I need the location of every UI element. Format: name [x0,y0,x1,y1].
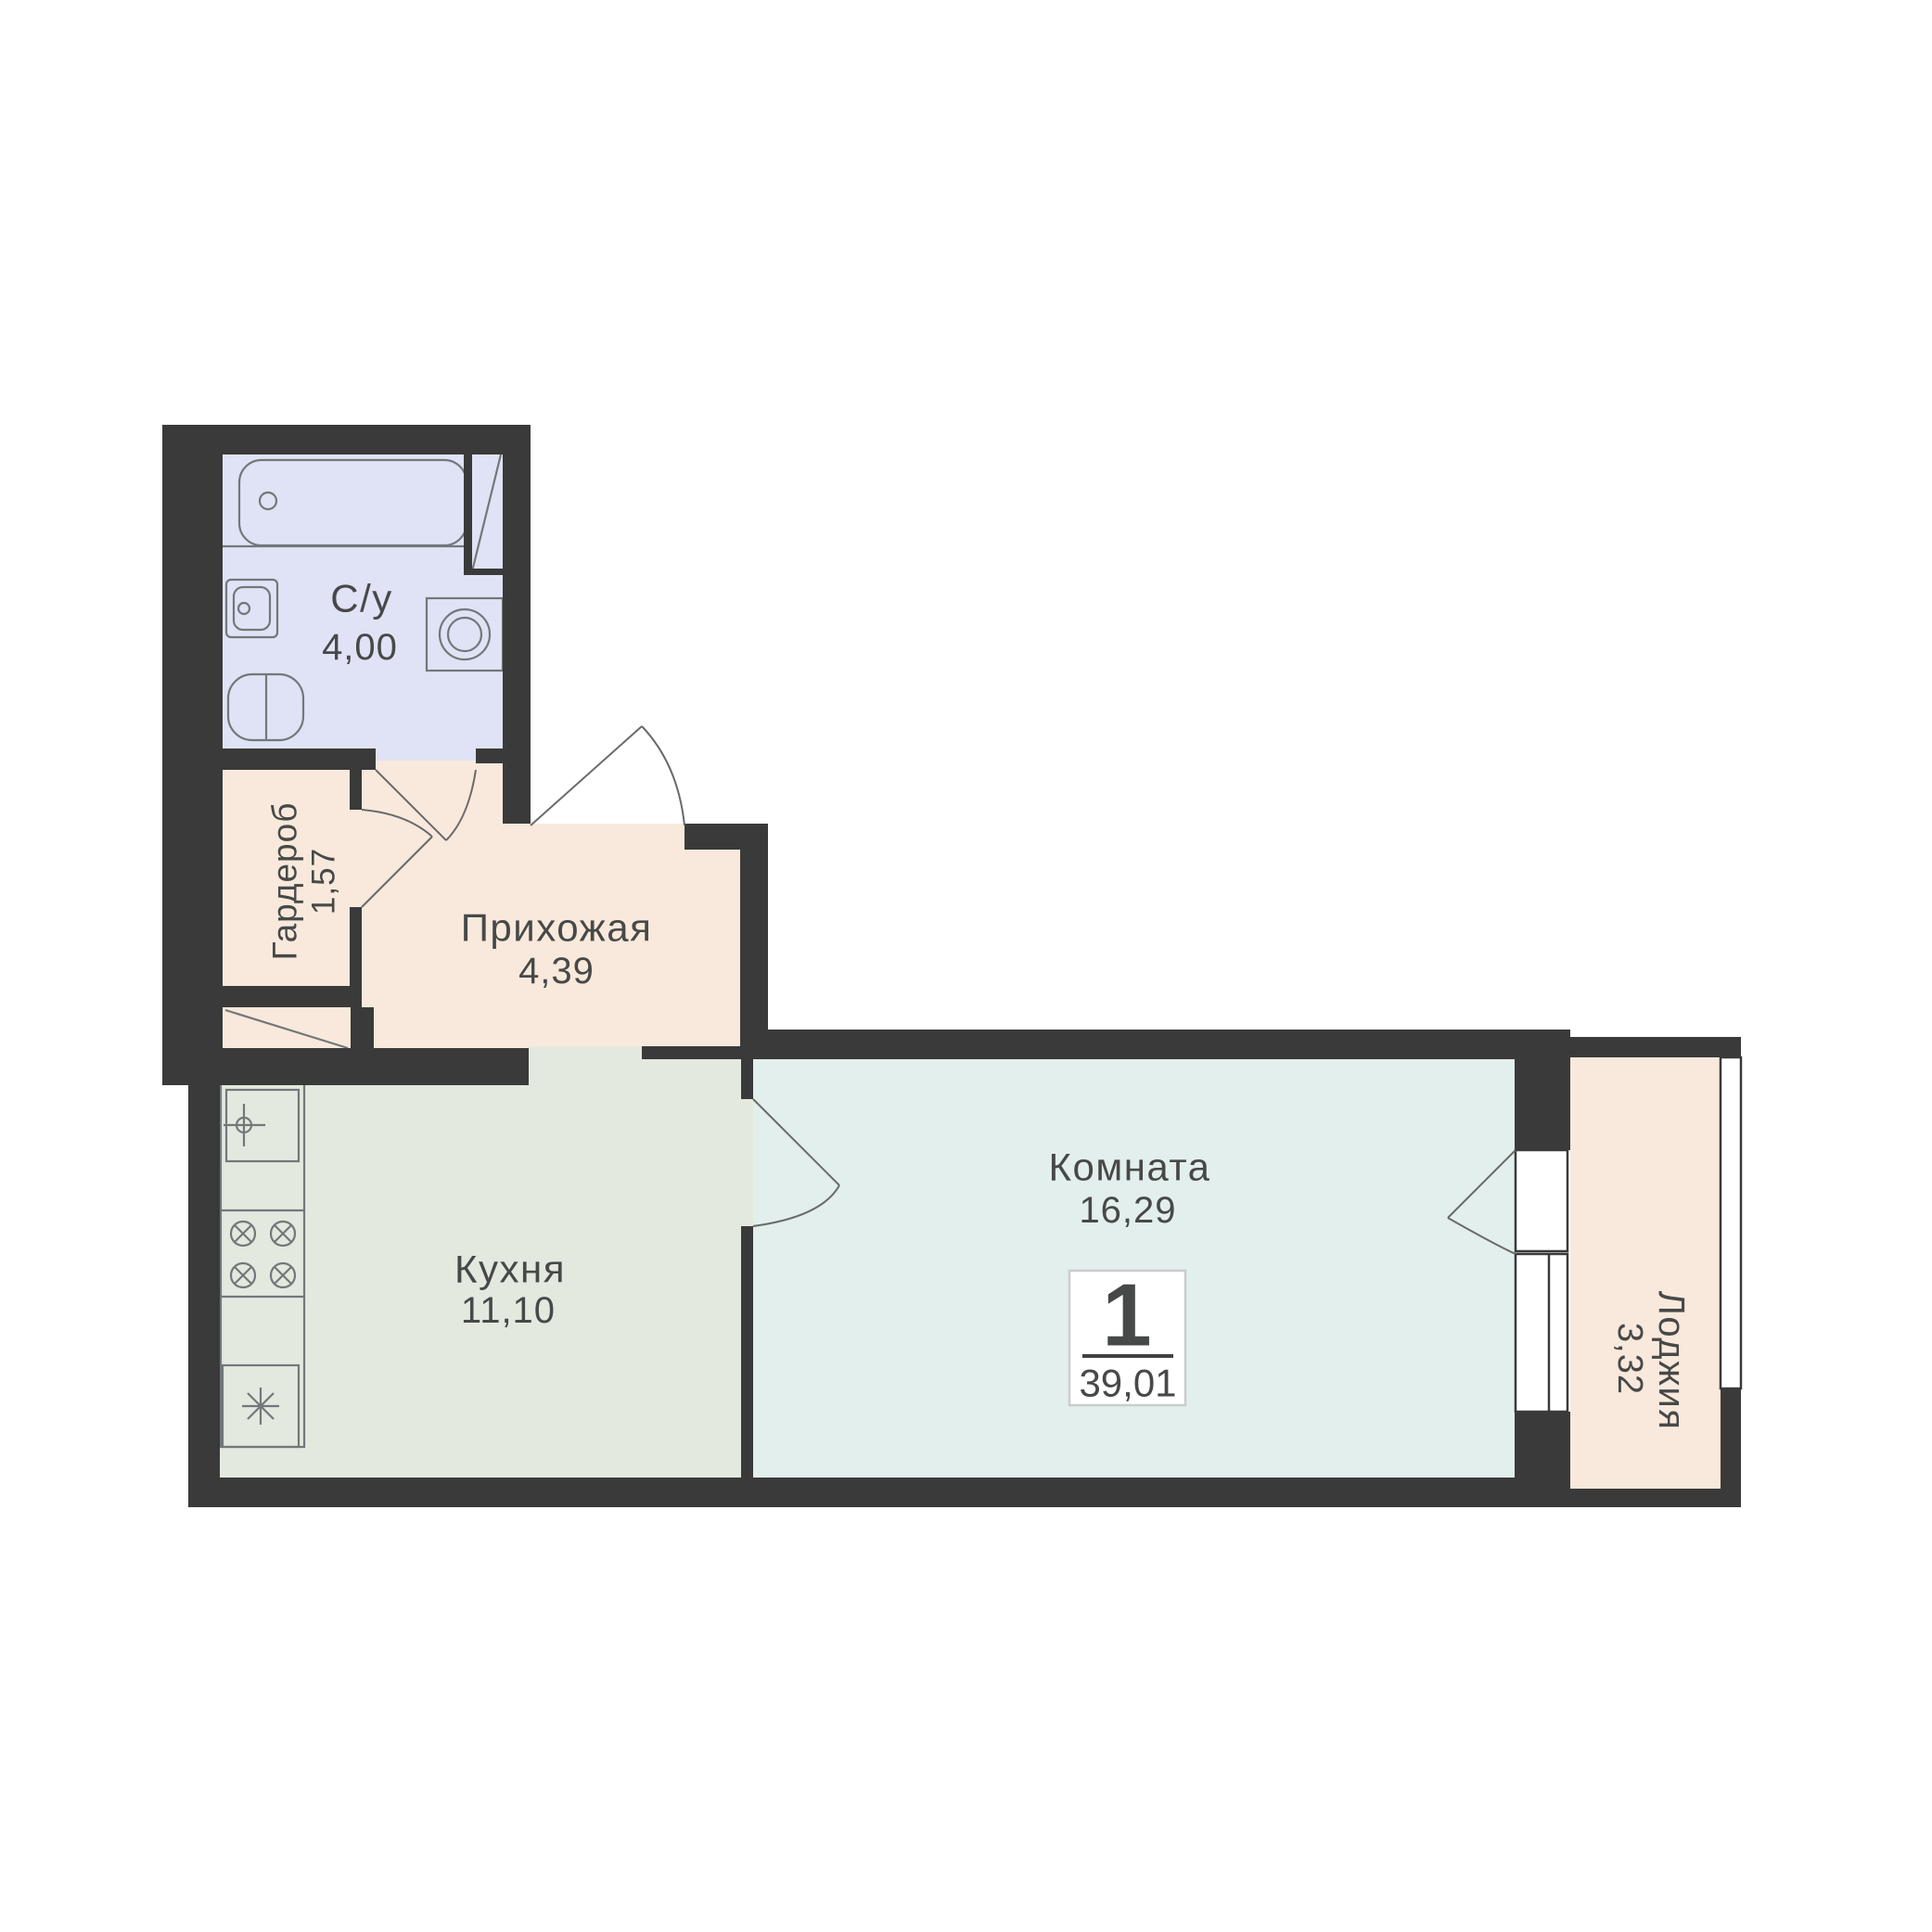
hallway-label: Прихожая [461,906,653,950]
wall-bar-under-hallway [362,1048,529,1085]
bathroom-area: 4,00 [322,627,398,668]
wall-bathroom-bottom-stub [476,748,503,763]
kitchen-area: 11,10 [461,1290,556,1331]
bathroom-label: С/у [330,577,393,621]
snowflake-icon [242,1388,279,1425]
wall-hallway-right [740,850,768,1059]
wall-bar-under-niche [162,1048,374,1085]
balcony-door [1516,1150,1567,1251]
loggia-area: 3,32 [1610,1323,1649,1395]
wall-bathroom-right-column [503,425,531,824]
entrance-door-swing [531,726,685,825]
room-fills [220,452,1722,1489]
living-label: Комната [1049,1145,1211,1189]
badge-total-area: 39,01 [1079,1362,1176,1405]
wall-partition-bottom [1515,1412,1570,1484]
wall-entrance-stub [685,824,768,850]
loggia-floor [1570,1057,1722,1489]
balcony-window [1516,1254,1567,1412]
wall-wardrobe-bottom [162,986,362,1007]
badge-rooms-count: 1 [1102,1266,1151,1365]
wall-loggia-top [1515,1037,1741,1057]
wall-loggia-bottom [1570,1489,1741,1507]
floor-plan-page: 1 39,01 С/у 4,00 Гардероб 1,57 Прихожая … [0,0,1932,1932]
floor-plan-svg: 1 39,01 С/у 4,00 Гардероб 1,57 Прихожая … [0,0,1932,1932]
wall-niche-bottom-stub [464,569,504,575]
wall-kitchen-living-lower [741,1226,753,1484]
wall-wardrobe-right-upper [350,748,362,810]
wall-living-top [740,1030,1570,1059]
wall-kitchen-left [188,1085,220,1478]
living-area: 16,29 [1079,1190,1176,1231]
kitchen-opening-strip [529,1046,642,1059]
wall-bottom-main [188,1478,1570,1507]
wardrobe-label: Гардероб [266,802,304,961]
kitchen-label: Кухня [454,1247,566,1291]
wall-kitchen-living-upper [741,1059,753,1099]
wall-partition-top [1515,1057,1570,1150]
hallway-area: 4,39 [518,951,595,992]
wall-loggia-right-block [1721,1388,1741,1489]
wall-niche-left-stub [464,452,472,575]
loggia-glazing [1721,1057,1741,1388]
apartment-badge: 1 39,01 [1069,1266,1185,1406]
loggia-label: Лоджия [1651,1291,1692,1431]
wall-kitchen-top-thin [642,1046,742,1059]
wardrobe-area: 1,57 [306,848,342,915]
